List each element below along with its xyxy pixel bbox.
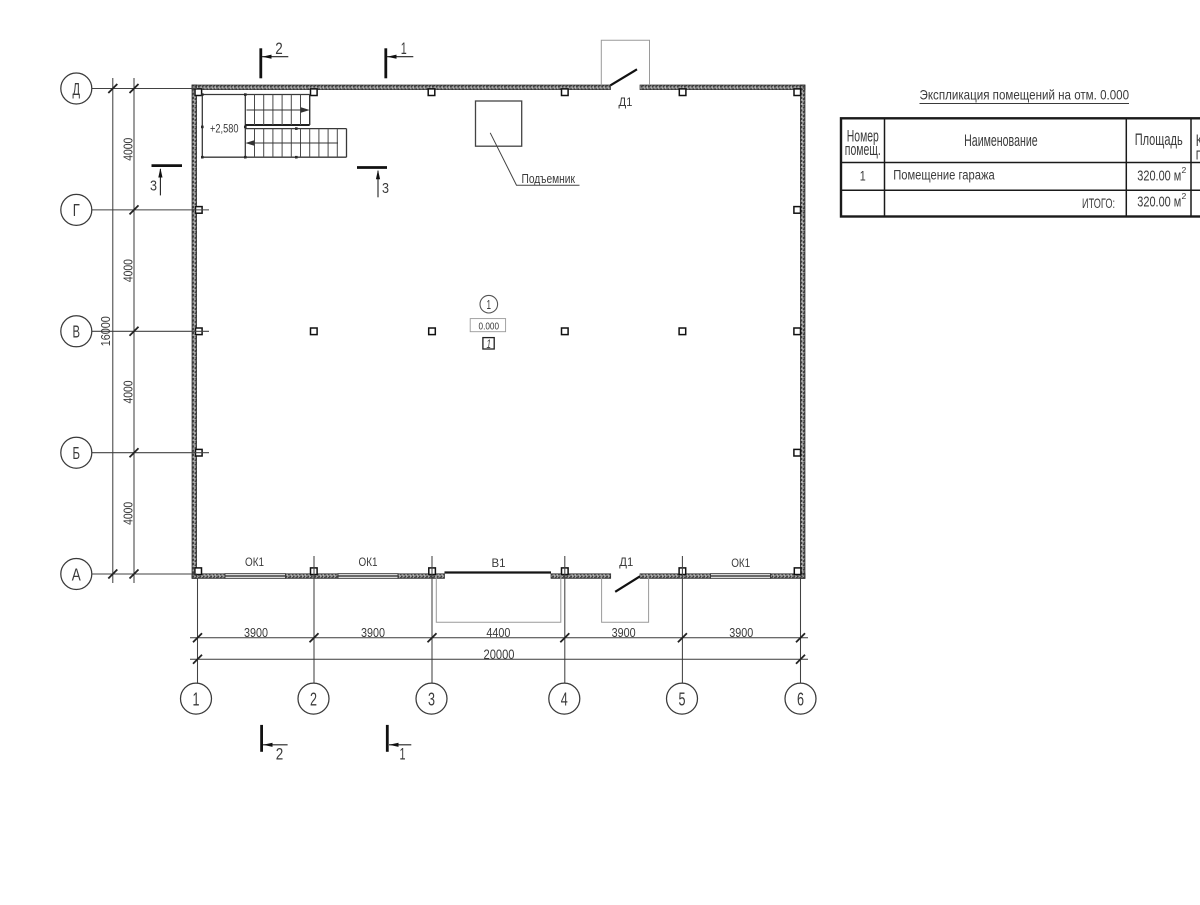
svg-text:2: 2	[1182, 191, 1187, 201]
svg-text:А: А	[72, 564, 81, 584]
svg-text:Наименование: Наименование	[964, 131, 1038, 150]
svg-text:В: В	[73, 322, 81, 342]
svg-text:4000: 4000	[120, 502, 135, 525]
svg-text:3900: 3900	[729, 625, 753, 640]
svg-text:3: 3	[382, 180, 389, 197]
svg-text:ОК1: ОК1	[245, 555, 264, 569]
svg-text:1: 1	[487, 337, 492, 351]
svg-text:4000: 4000	[120, 381, 135, 404]
svg-text:2: 2	[1182, 165, 1187, 175]
svg-text:Д1: Д1	[619, 555, 633, 569]
svg-text:В1: В1	[492, 556, 506, 570]
svg-text:Помещение гаража: Помещение гаража	[893, 168, 995, 183]
svg-text:5: 5	[679, 689, 686, 709]
svg-text:Подъемник: Подъемник	[522, 172, 576, 186]
svg-text:Площадь: Площадь	[1135, 130, 1183, 149]
svg-text:Экспликация помещений на отм.: Экспликация помещений на отм. 0.000	[920, 86, 1130, 102]
svg-text:0.000: 0.000	[479, 320, 500, 332]
svg-text:ОК1: ОК1	[731, 556, 750, 570]
svg-text:4: 4	[561, 689, 568, 709]
svg-text:Д: Д	[73, 79, 81, 99]
svg-text:3900: 3900	[612, 625, 636, 640]
svg-text:помещ.: помещ.	[1196, 144, 1200, 163]
svg-text:4000: 4000	[120, 138, 135, 161]
svg-text:3900: 3900	[244, 625, 268, 640]
svg-text:16000: 16000	[98, 316, 113, 346]
svg-text:ИТОГО:: ИТОГО:	[1082, 195, 1115, 211]
svg-text:1: 1	[401, 39, 407, 58]
svg-text:6: 6	[797, 689, 804, 709]
svg-text:Г: Г	[73, 200, 80, 220]
svg-text:4400: 4400	[486, 625, 510, 640]
svg-text:Д1: Д1	[619, 95, 633, 109]
svg-text:ОК1: ОК1	[359, 555, 378, 569]
svg-text:3: 3	[150, 178, 157, 195]
svg-text:1: 1	[400, 744, 406, 763]
svg-text:1: 1	[193, 689, 200, 709]
svg-text:20000: 20000	[484, 647, 515, 662]
svg-text:помещ.: помещ.	[845, 140, 881, 159]
svg-text:1: 1	[487, 297, 492, 312]
svg-text:+2,580: +2,580	[210, 123, 239, 135]
svg-text:4000: 4000	[120, 259, 135, 282]
svg-text:2: 2	[275, 39, 283, 58]
svg-text:2: 2	[276, 744, 284, 763]
svg-text:3: 3	[428, 689, 435, 709]
svg-text:320.00 м: 320.00 м	[1137, 168, 1181, 185]
svg-text:Б: Б	[73, 443, 81, 463]
svg-text:1: 1	[860, 167, 866, 183]
svg-text:3900: 3900	[361, 625, 385, 640]
svg-text:2: 2	[310, 689, 317, 709]
svg-text:320.00 м: 320.00 м	[1137, 194, 1181, 211]
